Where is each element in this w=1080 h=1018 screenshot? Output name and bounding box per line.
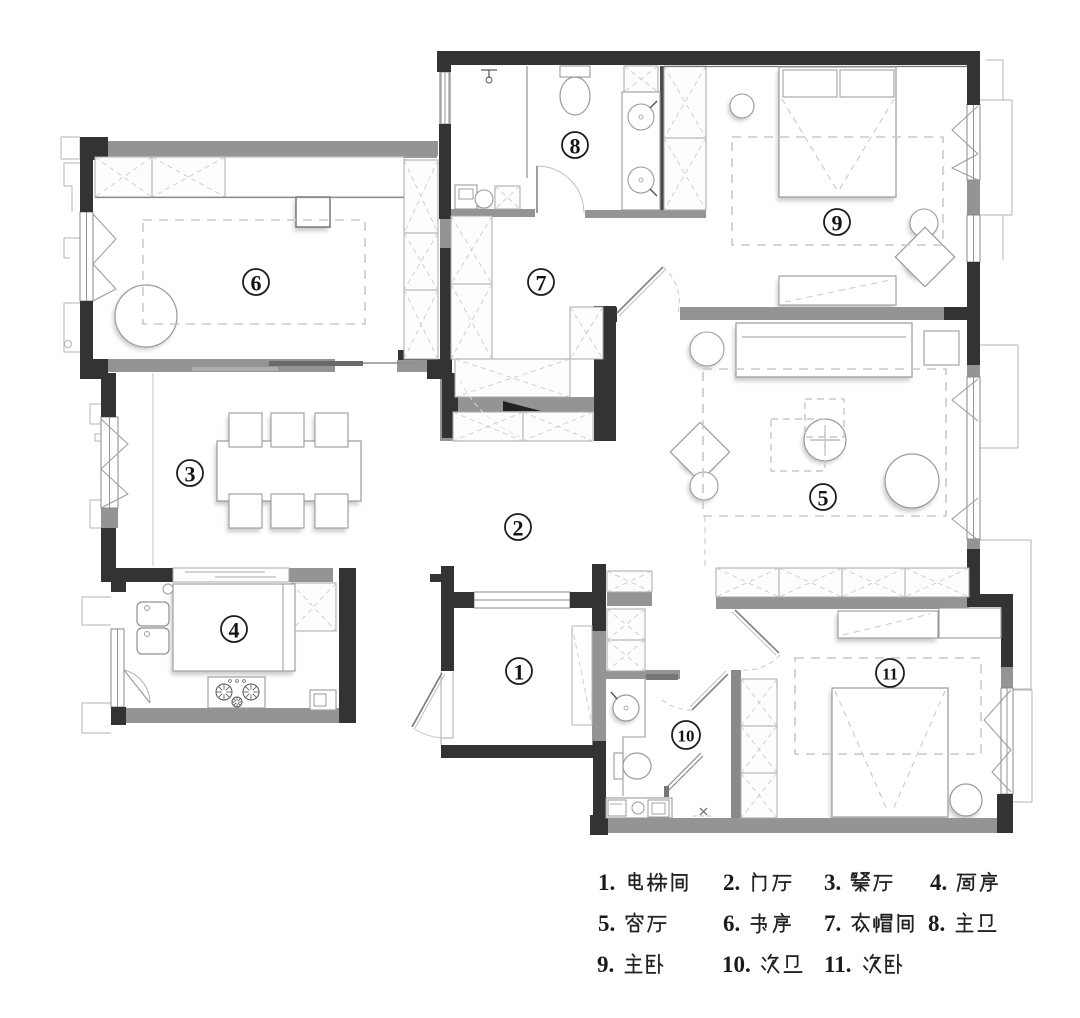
svg-text:3.: 3. (824, 870, 841, 895)
svg-text:6.: 6. (723, 911, 740, 936)
svg-text:11: 11 (882, 665, 898, 684)
svg-text:4: 4 (229, 618, 240, 643)
svg-text:9.: 9. (597, 952, 614, 977)
svg-text:6: 6 (251, 271, 262, 296)
svg-text:4.: 4. (930, 870, 947, 895)
svg-text:9: 9 (832, 211, 843, 236)
svg-text:8: 8 (570, 134, 581, 159)
svg-text:10: 10 (678, 727, 695, 746)
svg-text:7: 7 (536, 271, 547, 296)
svg-text:1: 1 (514, 660, 525, 685)
svg-text:2.: 2. (723, 870, 740, 895)
svg-text:10.: 10. (722, 952, 751, 977)
svg-text:8.: 8. (928, 911, 945, 936)
svg-text:2: 2 (513, 516, 524, 541)
svg-text:7.: 7. (824, 911, 841, 936)
svg-text:1.: 1. (598, 870, 615, 895)
svg-text:3: 3 (185, 462, 196, 487)
svg-text:5.: 5. (598, 911, 615, 936)
svg-text:5: 5 (818, 486, 829, 511)
svg-text:11.: 11. (824, 952, 851, 977)
